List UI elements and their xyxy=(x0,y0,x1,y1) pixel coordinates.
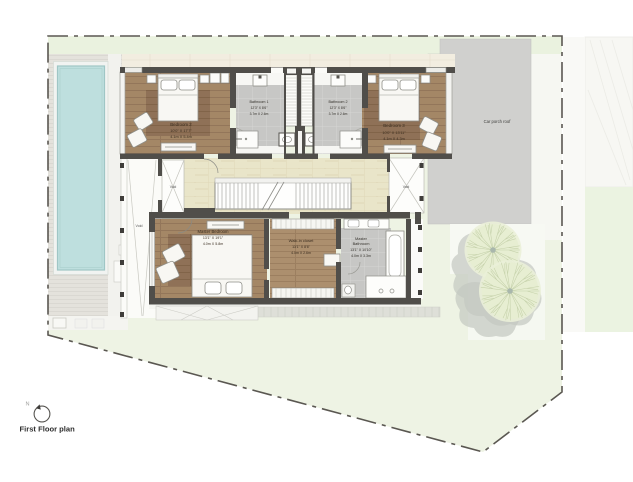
svg-text:13'1" X 19'1": 13'1" X 19'1" xyxy=(203,236,224,240)
svg-text:Bedroom 3: Bedroom 3 xyxy=(383,123,405,128)
svg-text:4.0m X 5.8m: 4.0m X 5.8m xyxy=(203,242,223,246)
svg-text:4.1m X 4.3m: 4.1m X 4.3m xyxy=(383,137,405,141)
svg-text:3.7m X 2.6m: 3.7m X 2.6m xyxy=(329,112,348,116)
svg-text:12'3" X 8'6": 12'3" X 8'6" xyxy=(330,106,348,110)
svg-text:Bathroom 1: Bathroom 1 xyxy=(249,100,268,104)
svg-text:4.0m X 2.6m: 4.0m X 2.6m xyxy=(291,251,311,255)
svg-text:Walk-in closet: Walk-in closet xyxy=(289,238,315,243)
svg-text:13'1" X 10'10": 13'1" X 10'10" xyxy=(350,248,372,252)
svg-text:4.1m X 5.4m: 4.1m X 5.4m xyxy=(170,135,192,139)
svg-text:10'0" X 13'11": 10'0" X 13'11" xyxy=(382,131,406,135)
svg-text:First Floor plan: First Floor plan xyxy=(20,425,76,434)
svg-text:10'0" X 17'7": 10'0" X 17'7" xyxy=(170,129,192,133)
svg-text:Bathroom: Bathroom xyxy=(353,241,370,246)
svg-text:Bedroom 2: Bedroom 2 xyxy=(170,122,192,127)
svg-text:Void: Void xyxy=(403,185,410,189)
svg-text:Void: Void xyxy=(136,224,143,228)
svg-text:Bathroom 2: Bathroom 2 xyxy=(328,100,347,104)
svg-text:4.0m X 3.3m: 4.0m X 3.3m xyxy=(351,254,371,258)
svg-text:3.7m X 2.6m: 3.7m X 2.6m xyxy=(250,112,269,116)
svg-text:13'1" X 8'6": 13'1" X 8'6" xyxy=(292,245,311,249)
svg-text:Master Bedroom: Master Bedroom xyxy=(198,229,229,234)
svg-text:N: N xyxy=(26,402,30,408)
svg-text:12'3" X 8'6": 12'3" X 8'6" xyxy=(251,106,269,110)
svg-text:Car porch roof: Car porch roof xyxy=(484,119,512,124)
svg-text:Void: Void xyxy=(170,185,177,189)
